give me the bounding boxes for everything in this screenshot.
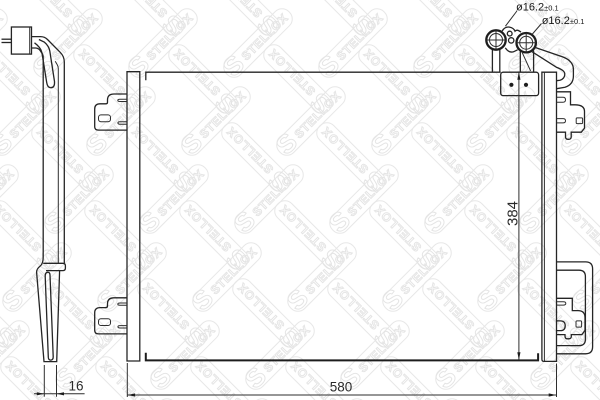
svg-text:STELLOX: STELLOX [372,202,425,255]
svg-text:STELLOX: STELLOX [562,202,600,255]
svg-text:STELLOX: STELLOX [414,124,467,177]
svg-text:STELLOX: STELLOX [34,124,87,177]
svg-text:STELLOX: STELLOX [213,0,266,20]
svg-text:STELLOX: STELLOX [193,358,246,400]
svg-text:STELLOX: STELLOX [277,202,330,255]
svg-text:STELLOX: STELLOX [129,124,182,177]
svg-text:STELLOX: STELLOX [235,280,288,333]
svg-text:ø16.2±0.1: ø16.2±0.1 [516,1,559,13]
svg-text:S: S [354,0,387,4]
svg-text:STELLOX: STELLOX [383,358,436,400]
svg-text:STELLOX: STELLOX [520,280,573,333]
svg-text:STELLOX: STELLOX [23,0,76,20]
svg-text:STELLOX: STELLOX [330,280,383,333]
svg-text:STELLOX: STELLOX [308,0,361,20]
svg-text:ø16.2±0.1: ø16.2±0.1 [542,15,585,27]
svg-text:S: S [164,0,197,4]
svg-text:STELLOX: STELLOX [182,202,235,255]
svg-text:STELLOX: STELLOX [588,245,600,298]
svg-text:S: S [449,0,482,4]
svg-text:S: S [0,0,7,4]
svg-text:STELLOX: STELLOX [98,358,151,400]
svg-text:S: S [69,0,102,4]
svg-text:STELLOX: STELLOX [140,280,193,333]
svg-text:STELLOX: STELLOX [118,0,171,20]
svg-text:STELLOX: STELLOX [425,280,478,333]
svg-text:384: 384 [505,201,522,226]
svg-text:STELLOX: STELLOX [551,46,600,99]
svg-text:STELLOX: STELLOX [76,46,129,99]
svg-text:STELLOX: STELLOX [573,358,600,400]
svg-text:STELLOX: STELLOX [509,124,562,177]
svg-text:S: S [259,0,292,4]
svg-text:580: 580 [330,379,353,394]
svg-text:STELLOX: STELLOX [87,202,140,255]
svg-text:S: S [597,49,600,82]
svg-text:STELLOX: STELLOX [593,0,600,20]
svg-text:STELLOX: STELLOX [319,124,372,177]
svg-text:STELLOX: STELLOX [403,0,456,20]
svg-text:16: 16 [68,378,83,393]
svg-text:STELLOX: STELLOX [478,358,531,400]
svg-text:STELLOX: STELLOX [224,124,277,177]
